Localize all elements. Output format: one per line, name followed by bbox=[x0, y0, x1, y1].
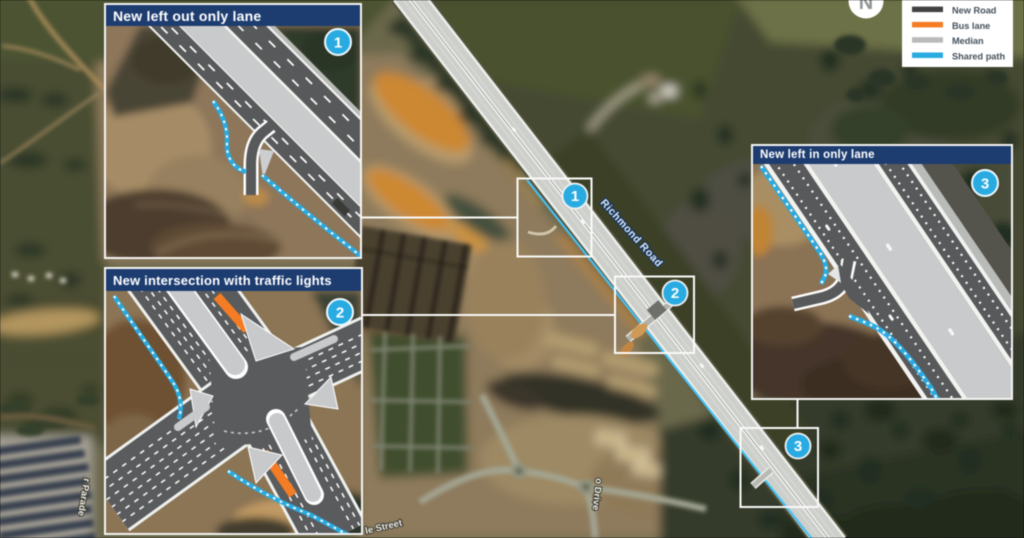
svg-text:3: 3 bbox=[981, 176, 989, 193]
svg-text:2: 2 bbox=[336, 305, 344, 322]
svg-text:1: 1 bbox=[334, 35, 342, 52]
